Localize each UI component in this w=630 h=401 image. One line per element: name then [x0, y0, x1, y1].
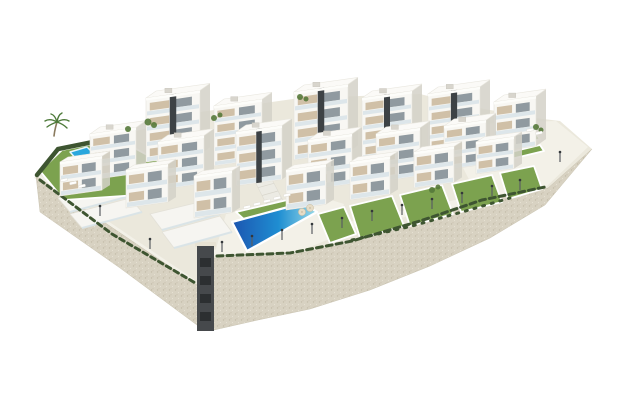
- bush: [145, 119, 152, 126]
- building-front: [194, 171, 232, 218]
- bush: [218, 113, 223, 118]
- building-side: [232, 166, 240, 213]
- rooftop-unit: [446, 84, 453, 89]
- bush: [436, 185, 441, 190]
- window-glazing: [214, 177, 227, 189]
- apartment-building: [414, 141, 462, 188]
- facade-panel: [197, 180, 211, 192]
- rooftop-unit: [391, 125, 398, 130]
- window-glazing: [214, 197, 227, 209]
- apartment-building: [236, 119, 292, 186]
- building-front: [476, 137, 514, 174]
- building-front: [126, 164, 168, 208]
- window-glazing: [148, 188, 162, 200]
- scene-svg: 3D aerial rendering of a hillside reside…: [0, 0, 630, 401]
- building-side: [514, 132, 522, 169]
- rooftop-unit: [165, 88, 172, 93]
- bush: [151, 122, 157, 128]
- building-side: [326, 159, 334, 204]
- palm-trunk: [54, 122, 57, 136]
- lamp-head: [281, 229, 284, 232]
- lamp-head: [519, 179, 522, 182]
- lamp-head: [559, 151, 562, 154]
- building-front: [286, 164, 326, 210]
- window-glazing: [435, 153, 448, 164]
- shaft-opening: [200, 276, 211, 285]
- bush: [297, 94, 303, 100]
- apartment-building: [286, 159, 334, 210]
- bush: [125, 126, 131, 132]
- rooftop-unit: [231, 97, 238, 102]
- window-glazing: [371, 163, 384, 174]
- parasol-tip: [309, 207, 310, 208]
- building-front: [350, 156, 390, 200]
- building-side: [454, 141, 462, 182]
- building-side: [536, 89, 546, 146]
- facade-panel: [197, 199, 211, 211]
- rooftop-unit: [106, 125, 113, 129]
- bush: [429, 187, 435, 193]
- rooftop-unit: [252, 123, 259, 128]
- lamp-head: [311, 223, 314, 226]
- apartment-building: [194, 166, 240, 218]
- lamp-head: [99, 205, 102, 208]
- window-glazing: [307, 171, 320, 183]
- rooftop-unit: [313, 82, 320, 87]
- architectural-render: 3D aerial rendering of a hillside reside…: [0, 0, 630, 401]
- lamp-head: [491, 185, 494, 188]
- building-front: [60, 156, 102, 196]
- rooftop-unit: [323, 131, 330, 136]
- rooftop-unit: [380, 88, 387, 93]
- palm-frond: [57, 122, 67, 128]
- lamp-head: [461, 192, 464, 195]
- apartment-building: [476, 132, 522, 174]
- lamp-head: [341, 217, 344, 220]
- shaft-opening: [200, 312, 211, 321]
- building-side: [168, 159, 176, 202]
- window-glazing: [307, 189, 320, 201]
- dark-core-strip: [256, 128, 262, 183]
- window-glazing: [371, 180, 384, 191]
- palm-frond: [57, 120, 69, 122]
- palm-frond: [45, 120, 57, 122]
- lamp-head: [401, 204, 404, 207]
- lamp-head: [431, 198, 434, 201]
- apartment-building: [350, 151, 398, 200]
- building-side: [390, 151, 398, 194]
- rooftop-unit: [509, 93, 516, 98]
- apartment-building: [60, 151, 110, 196]
- shaft-opening: [200, 294, 211, 303]
- lamp-head: [251, 235, 254, 238]
- building-front: [414, 146, 454, 188]
- window-glazing: [148, 170, 162, 182]
- rooftop-unit: [459, 117, 466, 122]
- bush: [533, 124, 539, 130]
- window-glazing: [435, 169, 448, 180]
- shaft-opening: [200, 258, 211, 267]
- lamp-head: [149, 238, 152, 241]
- building-side: [102, 151, 110, 190]
- apartment-building: [126, 159, 176, 208]
- lamp-head: [371, 210, 374, 213]
- bush: [211, 115, 217, 121]
- rooftop-unit: [174, 133, 181, 138]
- palm-tree: [45, 113, 69, 136]
- building-front: [236, 126, 282, 186]
- bush: [304, 97, 309, 102]
- lamp-head: [221, 241, 224, 244]
- parasol-tip: [301, 211, 302, 212]
